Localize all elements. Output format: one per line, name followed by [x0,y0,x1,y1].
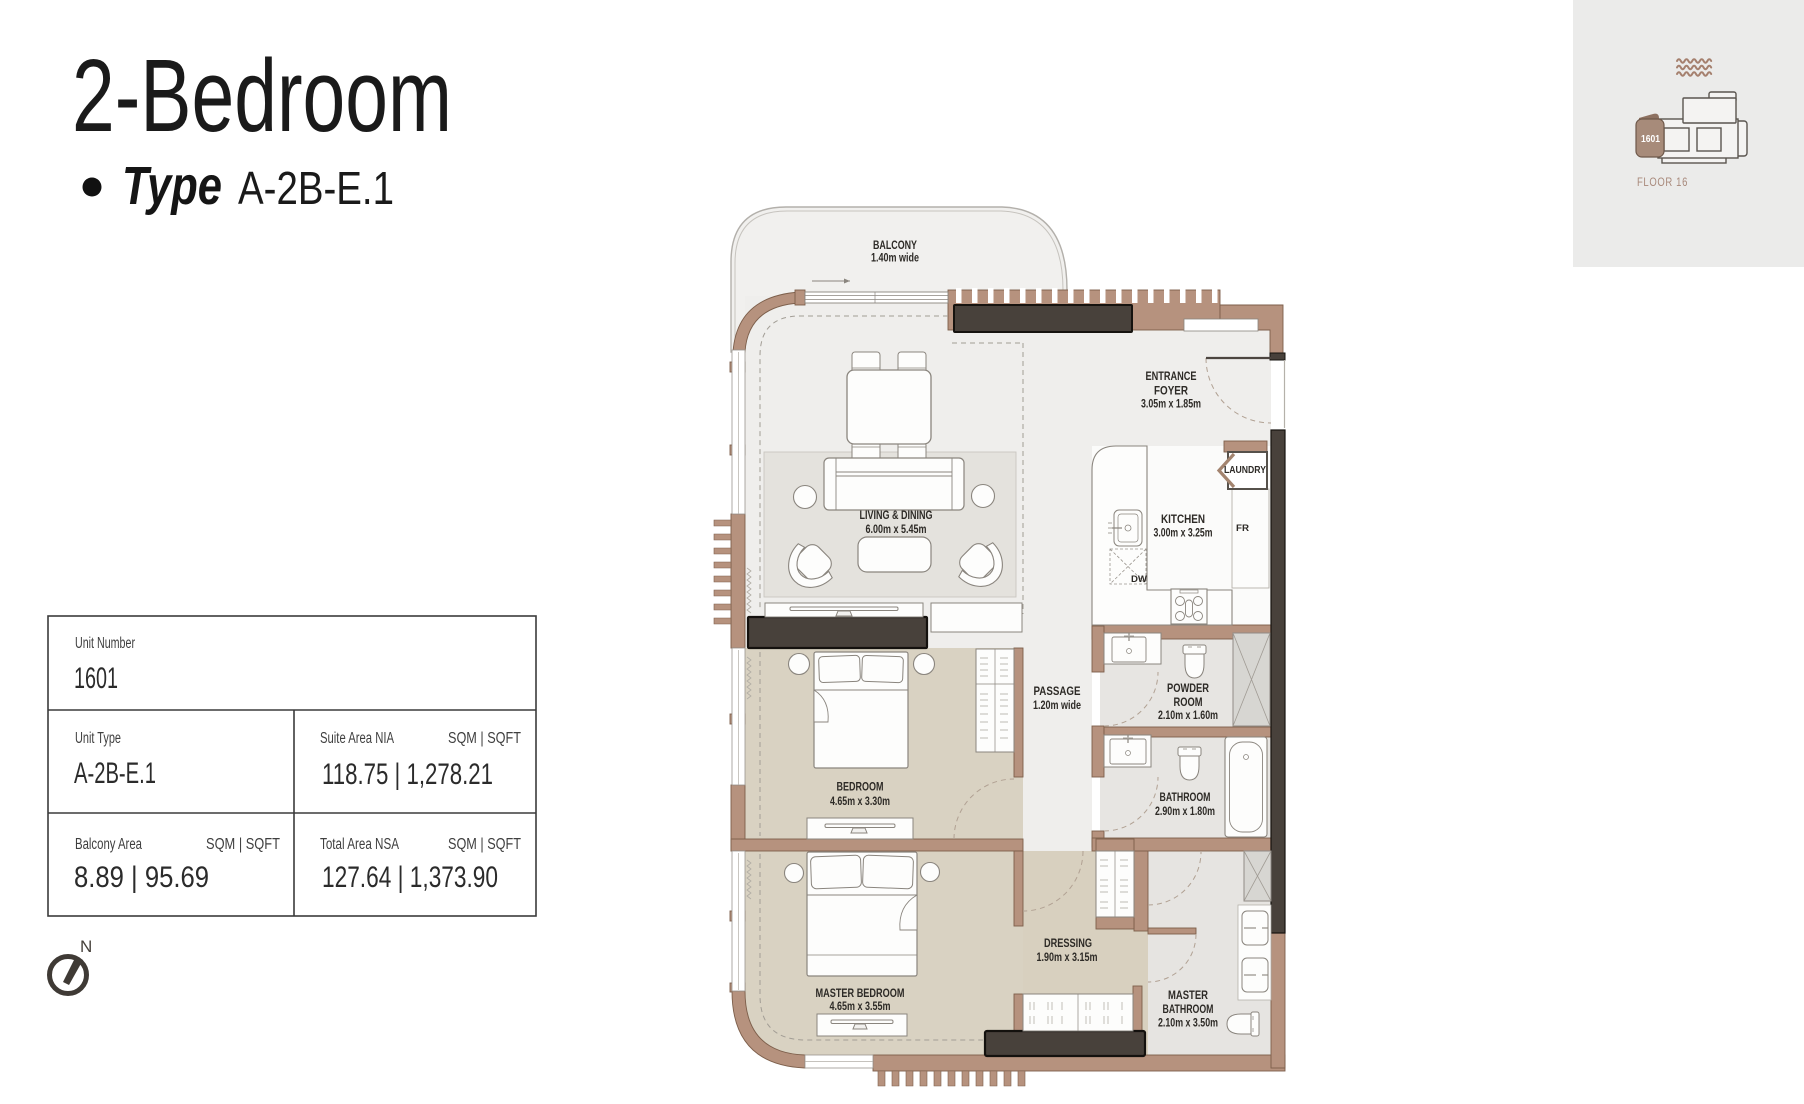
svg-text:ROOM: ROOM [1174,695,1203,709]
svg-text:127.64 | 1,373.90: 127.64 | 1,373.90 [322,861,498,894]
svg-text:1.90m x 3.15m: 1.90m x 3.15m [1037,952,1098,964]
svg-text:Unit Type: Unit Type [75,730,121,747]
svg-text:BEDROOM: BEDROOM [837,780,884,794]
svg-text:LIVING & DINING: LIVING & DINING [860,508,933,522]
svg-text:FOYER: FOYER [1154,384,1188,398]
svg-text:118.75 | 1,278.21: 118.75 | 1,278.21 [322,758,493,791]
svg-text:1601: 1601 [74,662,118,695]
svg-text:2-Bedroom: 2-Bedroom [72,38,452,153]
svg-text:DRESSING: DRESSING [1044,936,1092,950]
svg-text:KITCHEN: KITCHEN [1161,512,1205,526]
svg-text:A-2B-E.1: A-2B-E.1 [74,757,156,790]
svg-text:POWDER: POWDER [1167,681,1209,695]
svg-text:3.05m x 1.85m: 3.05m x 1.85m [1141,399,1201,411]
svg-text:MASTER: MASTER [1168,988,1208,1002]
svg-text:1601: 1601 [1641,133,1660,145]
svg-text:2.90m x 1.80m: 2.90m x 1.80m [1155,806,1215,818]
svg-text:2.10m x 3.50m: 2.10m x 3.50m [1158,1018,1218,1030]
svg-text:3.00m x 3.25m: 3.00m x 3.25m [1154,528,1213,540]
svg-text:1.20m wide: 1.20m wide [1033,700,1081,712]
svg-text:Total Area NSA: Total Area NSA [320,836,399,853]
svg-text:DW: DW [1131,574,1148,584]
svg-text:1.40m wide: 1.40m wide [871,253,919,265]
svg-text:SQM | SQFT: SQM | SQFT [206,836,280,853]
svg-text:6.00m x 5.45m: 6.00m x 5.45m [866,524,927,536]
svg-text:FR: FR [1236,523,1250,533]
svg-text:ENTRANCE: ENTRANCE [1146,369,1197,383]
svg-text:2.10m x 1.60m: 2.10m x 1.60m [1158,710,1218,722]
svg-text:SQM | SQFT: SQM | SQFT [448,836,521,853]
svg-text:BATHROOM: BATHROOM [1163,1002,1214,1016]
svg-text:A-2B-E.1: A-2B-E.1 [238,162,394,214]
svg-text:FLOOR 16: FLOOR 16 [1637,175,1688,189]
svg-text:SQM | SQFT: SQM | SQFT [448,730,521,747]
svg-text:8.89 | 95.69: 8.89 | 95.69 [74,861,209,894]
svg-text:4.65m x 3.30m: 4.65m x 3.30m [830,796,890,808]
svg-text:MASTER BEDROOM: MASTER BEDROOM [816,986,905,1000]
svg-text:BALCONY: BALCONY [873,238,917,252]
svg-text:BATHROOM: BATHROOM [1160,790,1211,804]
svg-text:Suite Area NIA: Suite Area NIA [320,730,394,747]
svg-text:4.65m x 3.55m: 4.65m x 3.55m [830,1001,891,1013]
svg-text:Unit Number: Unit Number [75,635,135,652]
svg-text:Type: Type [122,156,222,216]
svg-text:N: N [80,937,92,956]
svg-text:PASSAGE: PASSAGE [1034,684,1081,698]
svg-text:Balcony Area: Balcony Area [75,836,142,853]
svg-text:LAUNDRY: LAUNDRY [1224,465,1266,476]
